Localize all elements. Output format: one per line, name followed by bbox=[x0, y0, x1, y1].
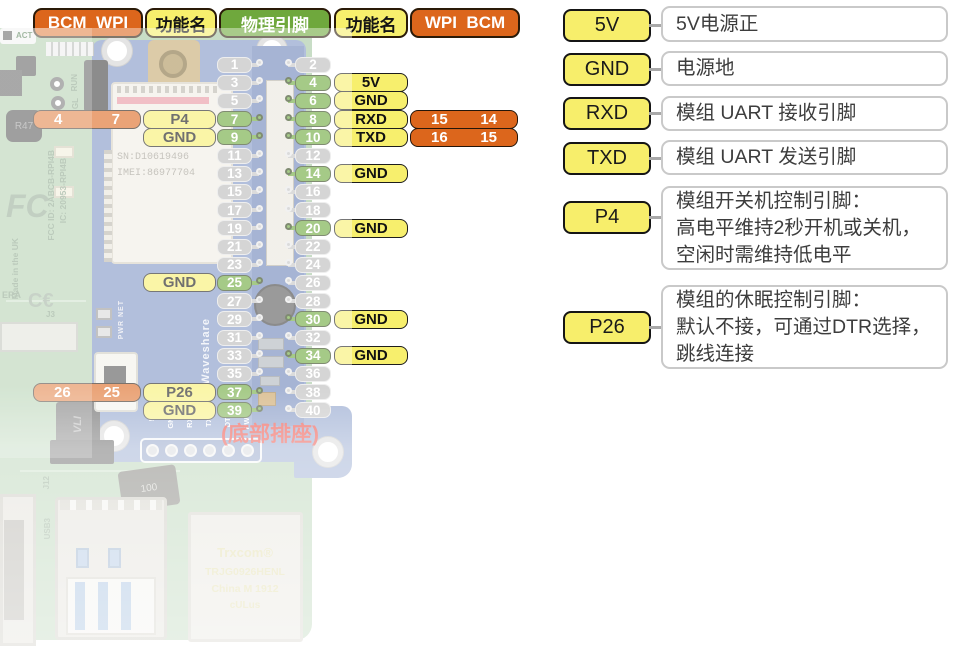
breakout-hole bbox=[165, 444, 178, 457]
black-connector bbox=[84, 60, 108, 112]
ic-chip bbox=[0, 70, 22, 96]
legend-description-line: 空闲时需维持低电平 bbox=[676, 242, 933, 269]
pin-solder-dot bbox=[256, 405, 263, 412]
header-bcm-wpi-left: BCM WPI bbox=[33, 8, 143, 38]
pin-26: 26 bbox=[295, 275, 331, 291]
bcm-number: 26 bbox=[54, 384, 71, 401]
pin-8: 8 bbox=[295, 111, 331, 127]
pin-solder-dot bbox=[285, 223, 292, 230]
pin-13: 13 bbox=[217, 166, 252, 182]
pin-solder-dot bbox=[256, 314, 263, 321]
act-led bbox=[3, 31, 12, 40]
pin-40: 40 bbox=[295, 402, 331, 418]
legend-chip-txd: TXD bbox=[563, 142, 651, 175]
pin-28: 28 bbox=[295, 293, 331, 309]
usb3-label: USB3 bbox=[43, 518, 52, 539]
pin-10-bcm-wpi-label: 1615 bbox=[410, 128, 518, 147]
pin-solder-dot bbox=[285, 405, 292, 412]
usb-contact bbox=[75, 582, 85, 630]
pin-12: 12 bbox=[295, 148, 331, 164]
pin-11: 11 bbox=[217, 148, 252, 164]
pin-8-bcm-wpi-label: 1514 bbox=[410, 110, 518, 129]
pin-solder-dot bbox=[285, 114, 292, 121]
wpi-number: 25 bbox=[103, 384, 120, 401]
breakout-hole bbox=[184, 444, 197, 457]
pin-18: 18 bbox=[295, 202, 331, 218]
j3-label: J3 bbox=[46, 310, 55, 319]
pin-37-bcm-wpi-label: 2625 bbox=[33, 383, 141, 402]
legend-description-line: 模组开关机控制引脚： bbox=[676, 188, 933, 215]
module-stripe bbox=[117, 97, 209, 104]
pin-20-function-label: GND bbox=[334, 219, 408, 238]
legend-chip-rxd: RXD bbox=[563, 97, 651, 130]
pin-solder-dot bbox=[256, 132, 263, 139]
ethernet-text-origin: China M 1912 bbox=[190, 583, 300, 595]
bottom-socket-note: (底部排座) bbox=[221, 418, 319, 448]
ethernet-text-cert: cULus bbox=[190, 600, 300, 611]
usb-contact bbox=[98, 582, 108, 630]
usb-port-window bbox=[108, 548, 121, 568]
run-label: RUN bbox=[70, 74, 79, 91]
pin-14: 14 bbox=[295, 166, 331, 182]
usb-port-edge-slot bbox=[4, 520, 24, 620]
pin-20: 20 bbox=[295, 220, 331, 236]
legend-description-rxd: 模组 UART 接收引脚 bbox=[661, 96, 948, 131]
pin-30: 30 bbox=[295, 311, 331, 327]
pin-2: 2 bbox=[295, 57, 331, 73]
smd-component-tan bbox=[258, 392, 276, 406]
legend-description-txd: 模组 UART 发送引脚 bbox=[661, 140, 948, 175]
antenna-connector bbox=[159, 50, 187, 78]
header-wpi-bcm-right: WPI BCM bbox=[410, 8, 520, 38]
pin-6: 6 bbox=[295, 93, 331, 109]
pin-4-function-label: 5V bbox=[334, 73, 408, 92]
pin-solder-dot bbox=[256, 387, 263, 394]
legend-description-line: 跳线连接 bbox=[676, 341, 933, 368]
pin-34: 34 bbox=[295, 348, 331, 364]
pin-5: 5 bbox=[217, 93, 252, 109]
legend-description-line: 默认不接，可通过DTR选择， bbox=[676, 314, 933, 341]
pin-31: 31 bbox=[217, 330, 252, 346]
j12-label: J12 bbox=[42, 476, 51, 489]
camera-connector bbox=[0, 322, 78, 352]
pin-24: 24 bbox=[295, 257, 331, 273]
ic-id-text: IC: 20953-RPI4B bbox=[58, 158, 68, 223]
header-comb bbox=[46, 42, 94, 56]
smd-component bbox=[258, 338, 284, 350]
pin-34-function-label: GND bbox=[334, 346, 408, 365]
camera-label: ERA bbox=[2, 290, 21, 300]
pin-7-bcm-wpi-label: 47 bbox=[33, 110, 141, 129]
legend-chip-5v: 5V bbox=[563, 9, 651, 42]
pin-solder-dot bbox=[285, 59, 292, 66]
pin-39-function-label: GND bbox=[143, 401, 216, 420]
pin-6-function-label: GND bbox=[334, 91, 408, 110]
breakout-hole bbox=[146, 444, 159, 457]
smd-component bbox=[258, 356, 284, 368]
pin-solder-dot bbox=[256, 296, 263, 303]
pin-solder-dot bbox=[256, 150, 263, 157]
pin-solder-dot bbox=[285, 205, 292, 212]
pin-37-function-label: P26 bbox=[143, 383, 216, 402]
pin-solder-dot bbox=[256, 241, 263, 248]
pin-39: 39 bbox=[217, 402, 252, 418]
pin-15: 15 bbox=[217, 184, 252, 200]
pin-7-function-label: P4 bbox=[143, 110, 216, 129]
wpi-number: 15 bbox=[431, 111, 448, 128]
legend-description-p4: 模组开关机控制引脚：高电平维持2秒开机或关机，空闲时需维持低电平 bbox=[661, 186, 948, 270]
wpi-number: 16 bbox=[431, 129, 448, 146]
ic-chip-wide bbox=[50, 440, 114, 464]
header-func-left: 功能名 bbox=[145, 8, 217, 38]
legend-description-line: 模组的休眠控制引脚： bbox=[676, 287, 933, 314]
pin-35: 35 bbox=[217, 366, 252, 382]
pin-23: 23 bbox=[217, 257, 252, 273]
legend-description-line: 高电平维持2秒开机或关机， bbox=[676, 215, 933, 242]
pin-solder-dot bbox=[285, 332, 292, 339]
pin-38: 38 bbox=[295, 384, 331, 400]
pin-solder-dot bbox=[285, 387, 292, 394]
pin-1: 1 bbox=[217, 57, 252, 73]
module-sn-text: SN:D10619496 bbox=[117, 152, 189, 163]
legend-description-gnd: 电源地 bbox=[661, 51, 948, 86]
pin-solder-dot bbox=[256, 332, 263, 339]
act-label: ACT bbox=[16, 31, 32, 40]
pinout-infographic: SN:D10619496 IMEI:86977704 ACT RUN GL R4… bbox=[0, 0, 960, 646]
pin-8-function-label: RXD bbox=[334, 110, 408, 129]
usb-contact bbox=[121, 582, 131, 630]
ethernet-text-model: TRJG0926HENL bbox=[190, 566, 300, 578]
pin-25-function-label: GND bbox=[143, 273, 216, 292]
module-side-pads bbox=[104, 150, 112, 262]
legend-chip-p4: P4 bbox=[563, 201, 651, 234]
r47-label: R47 bbox=[15, 121, 33, 132]
bcm-number: 14 bbox=[480, 111, 497, 128]
pin-solder-dot bbox=[285, 132, 292, 139]
ethernet-text-brand: Trxcom® bbox=[190, 545, 300, 560]
status-led bbox=[96, 308, 112, 320]
waveshare-label: Waveshare bbox=[200, 318, 212, 385]
wpi-number: 7 bbox=[112, 111, 120, 128]
pin-30-function-label: GND bbox=[334, 310, 408, 329]
legend-description-5v: 5V电源正 bbox=[661, 6, 948, 42]
breakout-hole bbox=[203, 444, 216, 457]
pin-solder-dot bbox=[256, 205, 263, 212]
jumper-hole bbox=[50, 77, 64, 91]
pwr-net-label: PWR NET bbox=[118, 300, 125, 339]
pin-9: 9 bbox=[217, 129, 252, 145]
legend-description-line: 5V电源正 bbox=[676, 11, 933, 38]
pin-33: 33 bbox=[217, 348, 252, 364]
pin-25: 25 bbox=[217, 275, 252, 291]
pin-solder-dot bbox=[285, 241, 292, 248]
smd-component bbox=[260, 376, 280, 386]
pin-19: 19 bbox=[217, 220, 252, 236]
pin-16: 16 bbox=[295, 184, 331, 200]
pin-3: 3 bbox=[217, 75, 252, 91]
pin-solder-dot bbox=[285, 296, 292, 303]
jumper-hole bbox=[51, 96, 65, 110]
pin-14-function-label: GND bbox=[334, 164, 408, 183]
fcc-id-text: FCC ID: 2ABCB-RPI4B bbox=[46, 150, 56, 241]
pin-10-function-label: TXD bbox=[334, 128, 408, 147]
fcc-logo: FC bbox=[6, 188, 49, 225]
pin-7: 7 bbox=[217, 111, 252, 127]
legend-description-line: 电源地 bbox=[676, 55, 933, 82]
pin-21: 21 bbox=[217, 239, 252, 255]
diode-mark: 100 bbox=[140, 481, 158, 494]
pin-solder-dot bbox=[285, 314, 292, 321]
pin-22: 22 bbox=[295, 239, 331, 255]
status-led bbox=[96, 326, 112, 338]
gl-label: GL bbox=[71, 98, 80, 109]
header-func-right: 功能名 bbox=[334, 8, 408, 38]
pin-36: 36 bbox=[295, 366, 331, 382]
usb-port-teeth bbox=[60, 500, 162, 510]
vli-label: VLI bbox=[72, 416, 84, 433]
legend-description-line: 模组 UART 发送引脚 bbox=[676, 144, 933, 171]
pin-27: 27 bbox=[217, 293, 252, 309]
bcm-number: 4 bbox=[54, 111, 62, 128]
legend-description-line: 模组 UART 接收引脚 bbox=[676, 100, 933, 127]
pin-37: 37 bbox=[217, 384, 252, 400]
pin-10: 10 bbox=[295, 129, 331, 145]
pin-solder-dot bbox=[256, 223, 263, 230]
led-component bbox=[54, 146, 74, 158]
header-physical-pin: 物理引脚 bbox=[219, 8, 331, 38]
bcm-number: 15 bbox=[480, 129, 497, 146]
module-imei-text: IMEI:86977704 bbox=[117, 168, 195, 179]
pin-solder-dot bbox=[285, 150, 292, 157]
module-top-pads bbox=[117, 86, 217, 93]
legend-chip-p26: P26 bbox=[563, 311, 651, 344]
pin-29: 29 bbox=[217, 311, 252, 327]
usb-port-window bbox=[76, 548, 89, 568]
pin-17: 17 bbox=[217, 202, 252, 218]
pin-solder-dot bbox=[256, 59, 263, 66]
pin-9-function-label: GND bbox=[143, 128, 216, 147]
legend-chip-gnd: GND bbox=[563, 53, 651, 86]
legend-description-p26: 模组的休眠控制引脚：默认不接，可通过DTR选择，跳线连接 bbox=[661, 285, 948, 369]
pin-32: 32 bbox=[295, 330, 331, 346]
pin-solder-dot bbox=[256, 114, 263, 121]
pin-4: 4 bbox=[295, 75, 331, 91]
